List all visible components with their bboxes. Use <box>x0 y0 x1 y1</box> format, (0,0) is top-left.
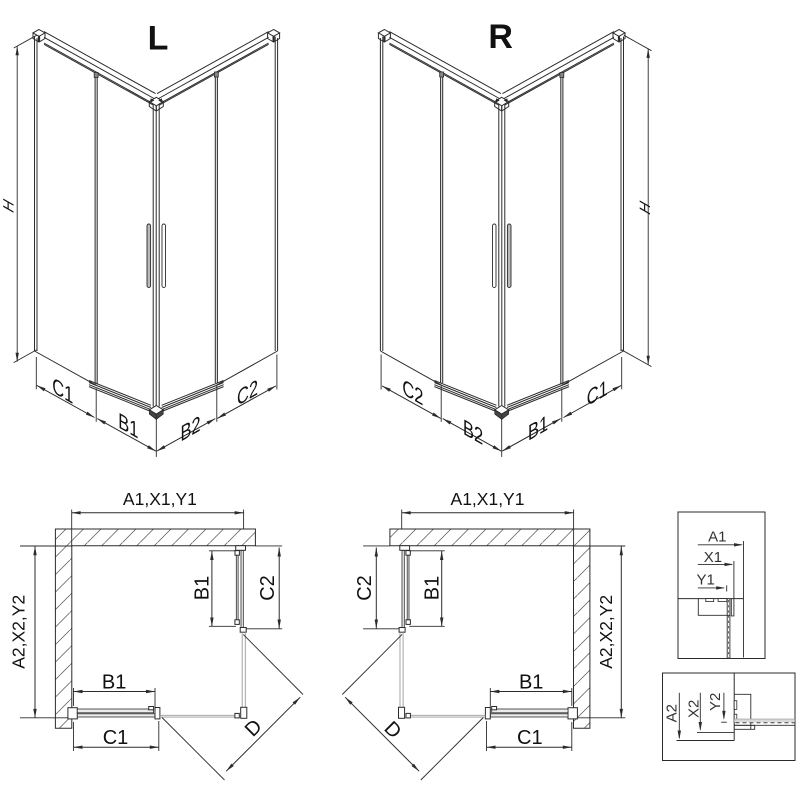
svg-text:B1: B1 <box>421 576 443 600</box>
svg-text:A1,X1,Y1: A1,X1,Y1 <box>451 489 525 509</box>
svg-text:B1: B1 <box>102 672 126 694</box>
svg-text:C1: C1 <box>517 727 543 749</box>
svg-text:R: R <box>488 18 513 56</box>
svg-text:B1: B1 <box>192 576 214 600</box>
svg-text:A2,X2,Y2: A2,X2,Y2 <box>9 595 29 669</box>
svg-text:B1: B1 <box>519 672 543 694</box>
svg-text:A2,X2,Y2: A2,X2,Y2 <box>596 595 616 669</box>
svg-text:C2: C2 <box>354 575 376 601</box>
svg-text:L: L <box>148 19 169 57</box>
svg-text:C1: C1 <box>103 727 129 749</box>
svg-text:A2: A2 <box>663 704 680 722</box>
svg-text:X1: X1 <box>704 549 722 566</box>
svg-text:A1,X1,Y1: A1,X1,Y1 <box>123 489 197 509</box>
svg-text:Y2: Y2 <box>707 693 724 711</box>
svg-text:Y1: Y1 <box>697 572 715 589</box>
svg-text:X2: X2 <box>685 700 702 718</box>
svg-text:A1: A1 <box>708 529 726 546</box>
svg-text:C2: C2 <box>257 575 279 601</box>
